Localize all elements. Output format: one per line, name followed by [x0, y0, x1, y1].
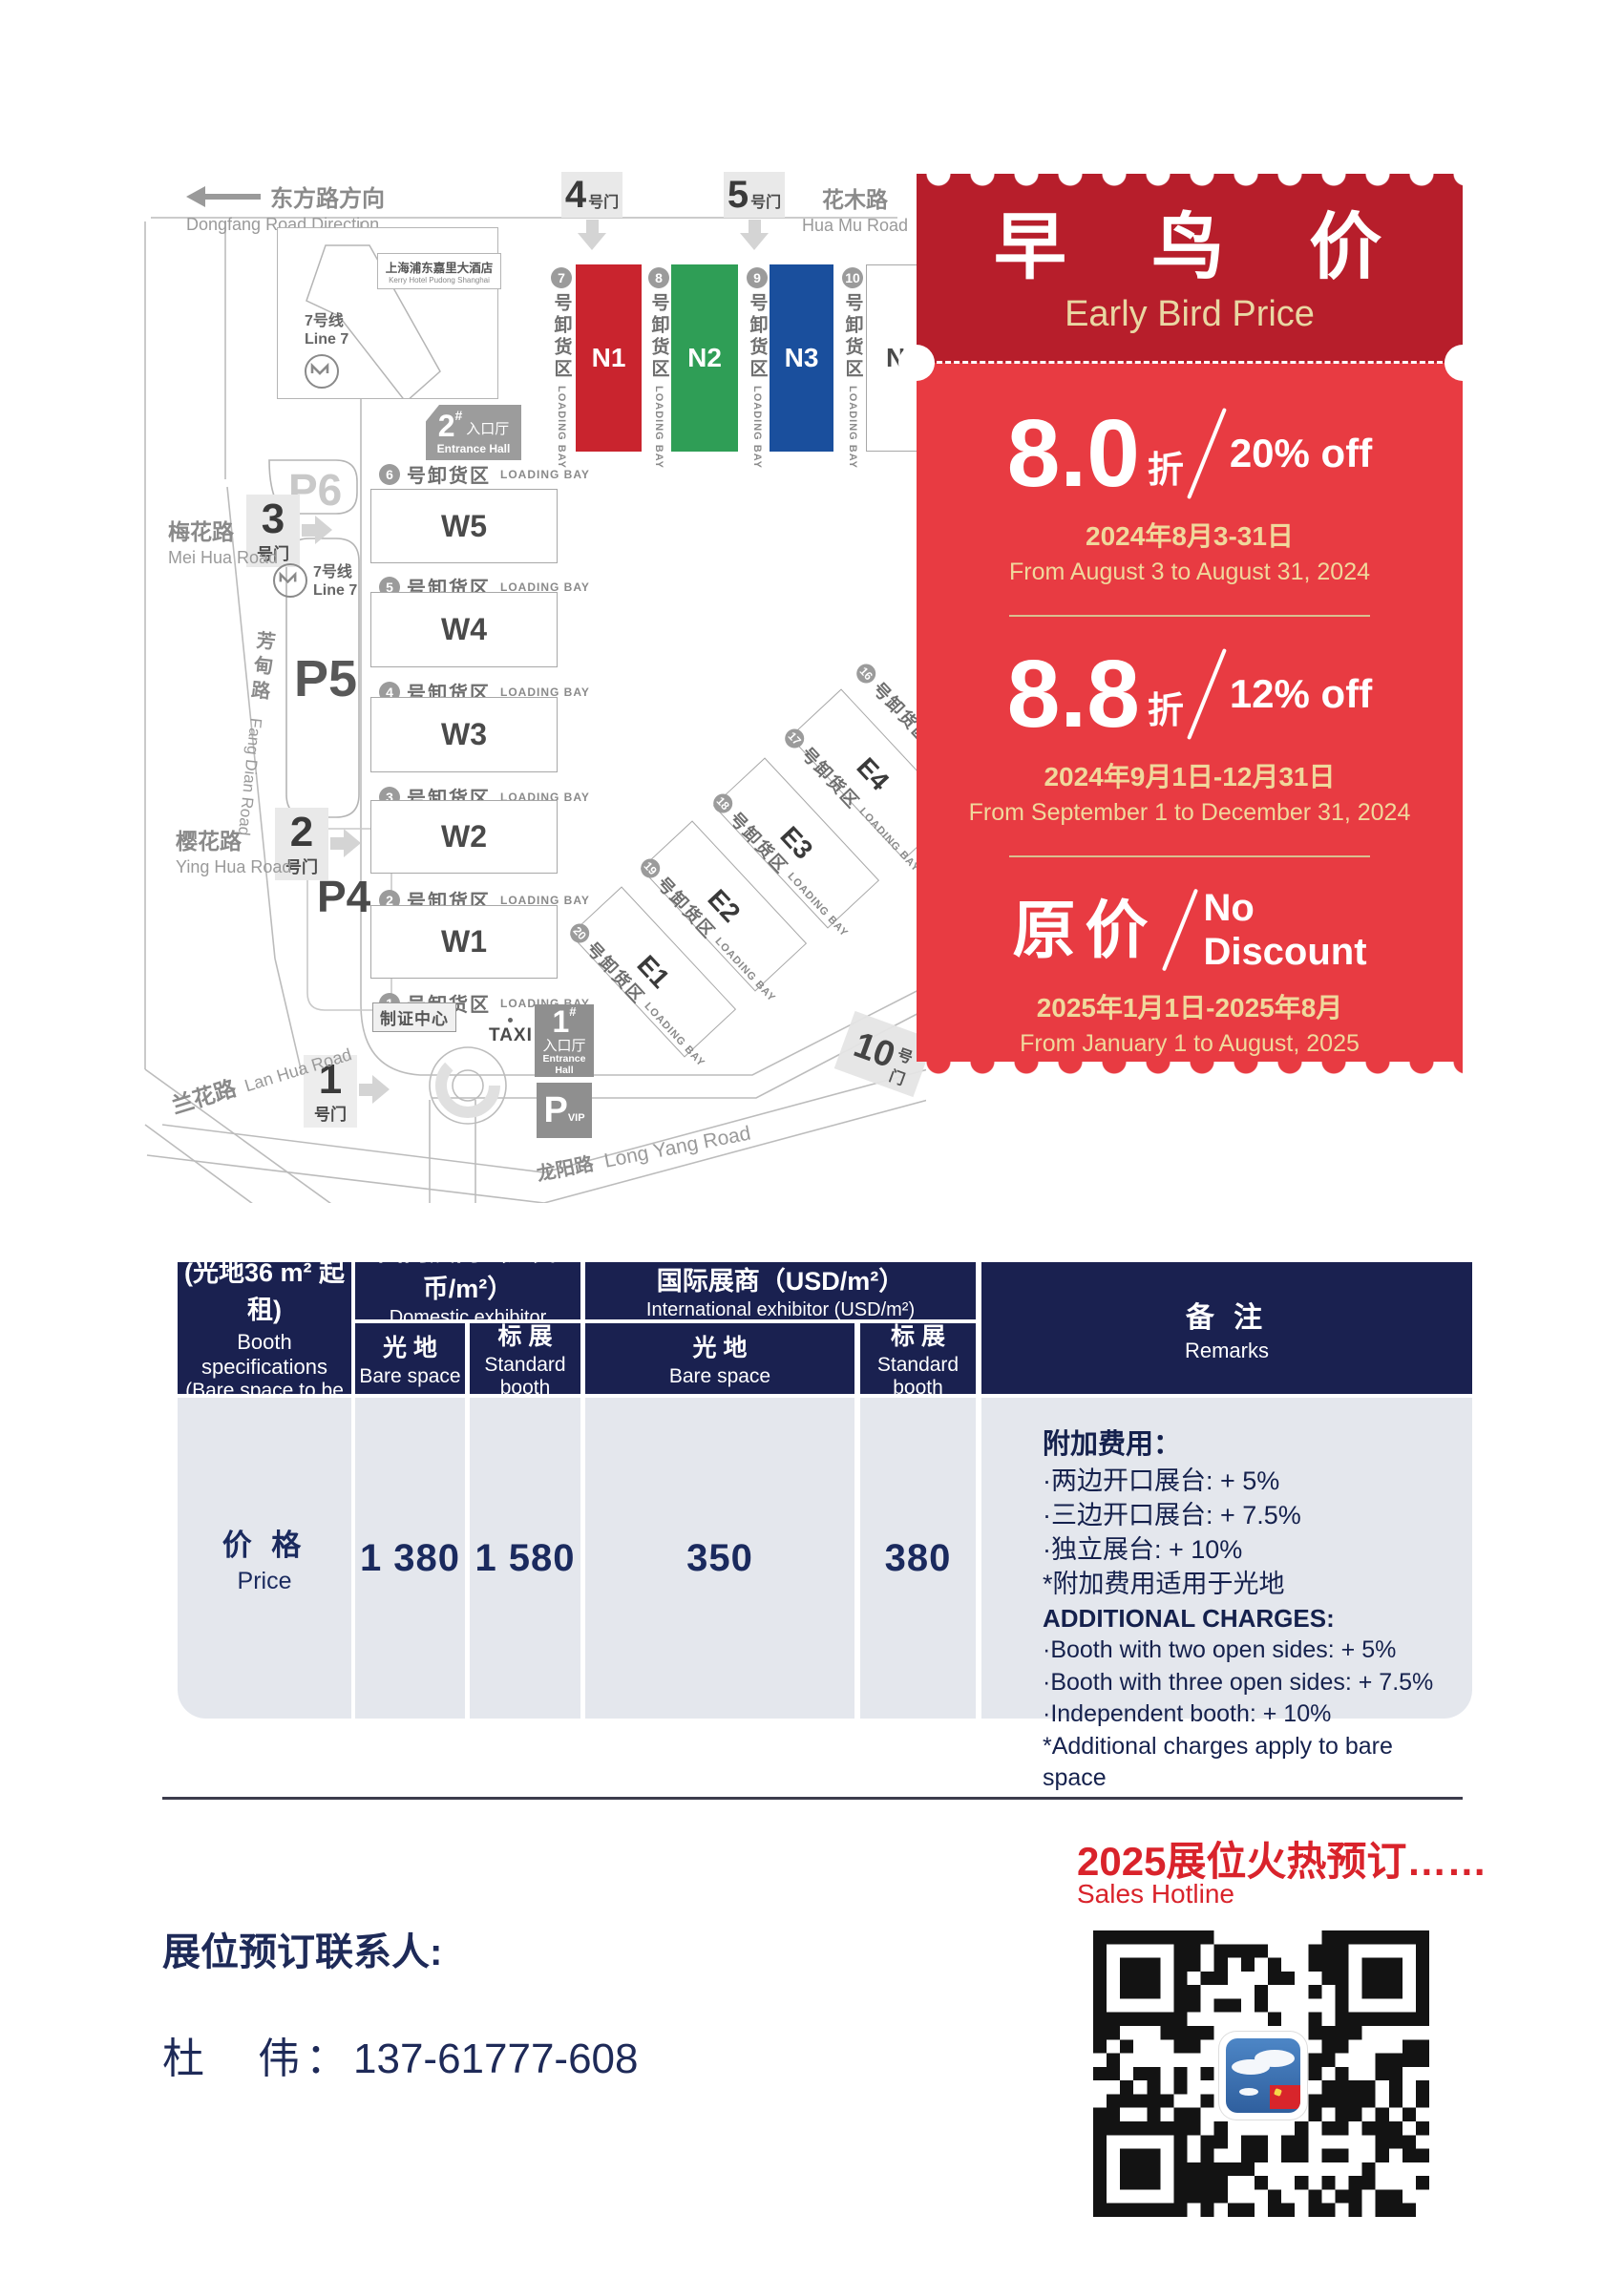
road-label-meihua-zh: 梅花路: [168, 514, 278, 546]
loading-bay-8-en: LOADING BAY: [653, 386, 664, 469]
price-label-zh: 价 格: [222, 1521, 307, 1564]
dom-std-zh: 标 展: [498, 1318, 553, 1352]
gate-4-arrow-icon: [578, 220, 606, 250]
road-label-yinghua-en: Ying Hua Road: [176, 857, 291, 877]
hotel-label: 上海浦东嘉里大酒店 Kerry Hotel Pudong Shanghai: [377, 253, 501, 289]
remarks-en: Remarks: [1185, 1339, 1269, 1363]
contact-phone: 137-61777-608: [353, 2035, 638, 2083]
loading-bay-9-en: LOADING BAY: [751, 386, 763, 469]
specs-zh1: 展位规格: [209, 1209, 320, 1249]
price-label-en: Price: [238, 1568, 292, 1595]
gate-2-arrow-icon: [330, 829, 361, 857]
loading-bay-10-en: LOADING BAY: [847, 386, 858, 469]
contact-line: 杜 伟： 137-61777-608: [162, 2024, 638, 2085]
parking-vip: P VIP: [537, 1083, 592, 1138]
qr-logo-flag-icon: [1270, 2085, 1300, 2109]
metro-icon: [305, 354, 339, 389]
hall-w1: W1: [370, 905, 558, 979]
tier-1-value: 8.0: [1007, 406, 1140, 501]
taxi-text: TAXI: [489, 1025, 533, 1046]
tier-2-date-zh: 2024年9月1日-12月31日: [1044, 756, 1335, 794]
tier-3-off-line1: No: [1203, 886, 1366, 930]
remarks-cn-line1: ·两边开口展台: + 5%: [1043, 1464, 1279, 1498]
gate-4: 4 号门: [561, 172, 622, 218]
direction-label-zh: 东方路方向: [270, 179, 385, 213]
metro-line7-zh: 7号线: [305, 313, 344, 329]
road-label-meihua-en: Mei Hua Road: [168, 548, 278, 568]
intl-bare-en: Bare space: [669, 1365, 770, 1388]
specs-en1: Booth specifications: [178, 1330, 351, 1380]
intl-std-zh: 标 展: [891, 1318, 945, 1352]
hotel-label-en: Kerry Hotel Pudong Shanghai: [380, 276, 498, 285]
remarks-cn-line2: ·三边开口展台: + 7.5%: [1043, 1498, 1301, 1532]
international-en: International exhibitor (USD/m²): [646, 1299, 915, 1321]
loading-bay-9-zh: 号卸货区: [745, 293, 770, 381]
metro-line7-en: Line 7: [305, 331, 348, 348]
remarks-zh: 备 注: [1186, 1294, 1268, 1336]
loading-bay-10: 10 号卸货区 LOADING BAY: [838, 267, 867, 469]
gate-5-suffix: 号门: [750, 189, 781, 212]
hall-n2: N2: [671, 264, 738, 452]
table-subheader-intl-std: 标 展 Standard booth: [860, 1323, 976, 1394]
taxi-label: TAXI: [489, 1018, 533, 1046]
discount-tier-3: 原价 No Discount 2025年1月1日-2025年8月 From Ja…: [1012, 886, 1366, 1058]
entrance-hall-1-en: Entrance Hall: [535, 1054, 594, 1076]
table-header-international: 国际展商（USD/m²） International exhibitor (US…: [585, 1262, 976, 1319]
tier-2-off: 12% off: [1230, 671, 1372, 717]
remarks-cn-line4: *附加费用适用于光地: [1043, 1567, 1285, 1601]
dom-std-en: Standard booth: [470, 1354, 580, 1400]
parking-vip-sub: VIP: [568, 1112, 585, 1124]
loading-bay-6-en: LOADING BAY: [500, 468, 590, 481]
gate-2-number: 2: [290, 812, 313, 854]
tier-3-slash-icon: [1162, 889, 1198, 972]
table-subheader-dom-std: 标 展 Standard booth: [470, 1323, 580, 1394]
gate-1-suffix: 号门: [314, 1101, 347, 1125]
value-dom-std: 1 580: [475, 1537, 575, 1580]
remarks-en-line4: *Additional charges apply to bare space: [1043, 1731, 1463, 1795]
road-label-yinghua-zh: 樱花路: [176, 823, 291, 855]
hall-w4: W4: [370, 592, 558, 667]
value-intl-std: 380: [885, 1537, 952, 1580]
table-cell-intl-std-value: 380: [860, 1398, 976, 1719]
entrance-hall-1-number: 1: [552, 1005, 569, 1039]
footer-divider: [162, 1797, 1463, 1800]
table-cell-intl-bare-value: 350: [585, 1398, 854, 1719]
intl-bare-zh: 光 地: [693, 1329, 748, 1363]
metro-line7-side-zh: 7号线: [313, 564, 352, 580]
road-label-huamu-zh: 花木路: [802, 181, 908, 214]
coupon-title: 早 鸟 价: [994, 212, 1414, 285]
tier-2-date-en: From September 1 to December 31, 2024: [969, 799, 1411, 827]
tier-1-slash-icon: [1187, 408, 1227, 499]
metro-icon-side: [273, 563, 307, 598]
parking-vip-p: P: [543, 1092, 567, 1128]
road-label-huamu-en: Hua Mu Road: [802, 216, 908, 236]
entrance-hall-1-zh: 入口厅: [542, 1039, 585, 1055]
domestic-zh: 国内展商（人民币/m²）: [355, 1231, 580, 1305]
loading-bay-9-number: 9: [747, 267, 768, 288]
metro-line7-top: 7号线Line 7: [305, 312, 348, 389]
loading-bay-6-zh: 号卸货区: [407, 460, 491, 488]
discount-tier-1: 8.0 折 20% off 2024年8月3-31日 From August 3…: [1007, 405, 1372, 586]
entrance-hall-1-hash: #: [569, 1005, 576, 1019]
entrance-hall-2-en: Entrance Hall: [437, 442, 511, 455]
dom-bare-zh: 光 地: [383, 1329, 437, 1363]
taxi-dot-icon: [508, 1018, 513, 1023]
hotel-block: 上海浦东嘉里大酒店 Kerry Hotel Pudong Shanghai 7号…: [277, 227, 498, 399]
coupon-notch-left: [898, 345, 935, 381]
dom-bare-en: Bare space: [359, 1365, 460, 1388]
table-header-remarks: 备 注 Remarks: [981, 1262, 1472, 1394]
coupon-header: 早 鸟 价 Early Bird Price: [917, 174, 1463, 363]
remarks-en-title: ADDITIONAL CHARGES:: [1043, 1602, 1335, 1635]
tier-2-value: 8.8: [1007, 646, 1140, 742]
hall-w2: W2: [370, 800, 558, 874]
intl-std-en: Standard booth: [860, 1354, 976, 1400]
table-subheader-intl-bare: 光 地 Bare space: [585, 1323, 854, 1394]
coupon-dashed-line: [928, 361, 1451, 364]
tier-3-date-zh: 2025年1月1日-2025年8月: [1037, 987, 1343, 1025]
tier-3-off-line2: Discount: [1203, 930, 1366, 974]
parking-p4: P4: [317, 871, 370, 922]
loading-bay-6: 6 号卸货区 LOADING BAY: [379, 460, 590, 488]
hall-n3: N3: [770, 264, 833, 452]
gate-5-number: 5: [728, 176, 749, 214]
international-zh: 国际展商（USD/m²）: [657, 1260, 905, 1297]
remarks-en-line3: ·Independent booth: + 10%: [1043, 1698, 1331, 1731]
specs-zh2: (光地36 m² 起租): [178, 1252, 351, 1326]
loading-bay-8-zh: 号卸货区: [646, 293, 672, 381]
loading-bay-7: 7 号卸货区 LOADING BAY: [547, 267, 576, 469]
gate-5-arrow-icon: [740, 220, 769, 250]
hall-w3: W3: [370, 697, 558, 772]
loading-bay-8-number: 8: [648, 267, 669, 288]
tier-2-unit: 折: [1148, 681, 1184, 733]
badge-center-label: 制证中心: [372, 1002, 456, 1032]
qr-logo: [1219, 2032, 1307, 2120]
road-label-yinghua: 樱花路 Ying Hua Road: [176, 823, 291, 877]
table-cell-dom-bare-value: 1 380: [355, 1398, 465, 1719]
hotel-label-zh: 上海浦东嘉里大酒店: [380, 258, 498, 276]
table-header-specs: 展位规格 (光地36 m² 起租) Booth specifications (…: [178, 1262, 351, 1394]
entrance-hall-1: 1 # 入口厅 Entrance Hall: [535, 1004, 594, 1077]
entrance-hall-2-number: 2: [438, 411, 455, 441]
tier-1-date-en: From August 3 to August 31, 2024: [1009, 559, 1370, 586]
coupon-subtitle: Early Bird Price: [1065, 294, 1315, 335]
tier-1-date-zh: 2024年8月3-31日: [1086, 516, 1294, 554]
value-dom-bare: 1 380: [360, 1537, 460, 1580]
gate-3-arrow-icon: [302, 516, 332, 544]
discount-tier-2: 8.8 折 12% off 2024年9月1日-12月31日 From Sept…: [969, 645, 1411, 827]
gate-4-number: 4: [565, 176, 586, 214]
loading-bay-7-number: 7: [551, 267, 572, 288]
loading-bay-6-number: 6: [379, 464, 400, 485]
contact-label: 展位预订联系人:: [162, 1921, 442, 1976]
hall-n1: N1: [576, 264, 642, 452]
coupon-scallop-edge: [917, 174, 1463, 199]
entrance-hall-2-hash: #: [454, 409, 462, 422]
gate-1-arrow-icon: [359, 1075, 390, 1104]
loading-bay-7-zh: 号卸货区: [549, 293, 575, 381]
tier-3-value: 原价: [1012, 898, 1157, 961]
site-map: 东方路方向 Dongfang Road Direction 4 号门 5 号门 …: [134, 115, 926, 1203]
coupon-separator-2: [1009, 855, 1370, 857]
remarks-en-line1: ·Booth with two open sides: + 5%: [1043, 1635, 1396, 1667]
tier-3-date-en: From January 1 to August, 2025: [1020, 1030, 1360, 1058]
table-header-domestic: 国内展商（人民币/m²） Domestic exhibitor (RMB/m²): [355, 1262, 580, 1319]
metro-line7-side: 7号线Line 7: [273, 563, 357, 600]
coupon-body: 8.0 折 20% off 2024年8月3-31日 From August 3…: [917, 363, 1463, 1062]
tier-2-slash-icon: [1187, 648, 1227, 740]
coupon-bump-edge: [917, 1062, 1463, 1086]
early-bird-coupon: 早 鸟 价 Early Bird Price 8.0 折 20% off 202…: [917, 174, 1463, 1086]
entrance-hall-2-zh: 入口厅: [466, 422, 509, 436]
price-table: 展位规格 (光地36 m² 起租) Booth specifications (…: [178, 1262, 1472, 1719]
remarks-en-line2: ·Booth with three open sides: + 7.5%: [1043, 1667, 1433, 1699]
entrance-hall-2: 2 # 入口厅 Entrance Hall: [426, 405, 521, 460]
gate-4-suffix: 号门: [588, 189, 619, 212]
coupon-separator-1: [1009, 615, 1370, 617]
loading-bay-9: 9 号卸货区 LOADING BAY: [743, 267, 771, 469]
coupon-notch-right: [1445, 345, 1481, 381]
hall-w5: W5: [370, 489, 558, 563]
qr-logo-sky-image: [1226, 2038, 1300, 2113]
gate-5: 5 号门: [724, 172, 785, 218]
loading-bay-8: 8 号卸货区 LOADING BAY: [644, 267, 673, 469]
road-label-huamu: 花木路 Hua Mu Road: [802, 181, 908, 236]
metro-line7-side-en: Line 7: [313, 582, 357, 599]
tier-1-unit: 折: [1148, 440, 1184, 493]
table-cell-remarks: 附加费用： ·两边开口展台: + 5% ·三边开口展台: + 7.5% ·独立展…: [981, 1398, 1472, 1719]
contact-name: 杜 伟：: [162, 2024, 353, 2085]
loading-bay-7-en: LOADING BAY: [556, 386, 567, 469]
table-cell-dom-std-value: 1 580: [470, 1398, 580, 1719]
remarks-cn-title: 附加费用：: [1043, 1426, 1181, 1464]
table-row-price-label: 价 格 Price: [178, 1398, 351, 1719]
loading-bay-10-number: 10: [842, 267, 863, 288]
road-label-meihua: 梅花路 Mei Hua Road: [168, 514, 278, 568]
tier-1-off: 20% off: [1230, 431, 1372, 476]
remarks-cn-line3: ·独立展台: + 10%: [1043, 1532, 1242, 1567]
qr-code: [1093, 1930, 1429, 2217]
loading-bay-10-zh: 号卸货区: [840, 293, 866, 381]
hotline-subtitle: Sales Hotline: [1077, 1879, 1234, 1909]
parking-p5: P5: [294, 649, 357, 708]
road-label-fangdian-zh: 芳甸路: [246, 629, 275, 706]
table-subheader-dom-bare: 光 地 Bare space: [355, 1323, 465, 1394]
value-intl-bare: 350: [686, 1537, 753, 1580]
arrow-left-icon: [186, 186, 261, 207]
